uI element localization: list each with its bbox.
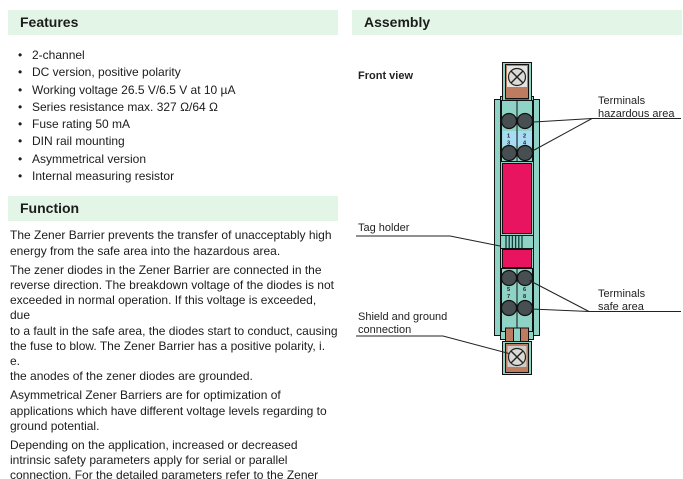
zener-barrier-device: 1 3 2 4 bbox=[495, 63, 540, 375]
shield-leader-line bbox=[356, 336, 509, 354]
device-rail-right bbox=[534, 100, 540, 336]
hazardous-terminal-screw bbox=[502, 114, 517, 129]
feature-item: DIN rail mounting bbox=[8, 133, 338, 150]
function-paragraph: The Zener Barrier prevents the transfer … bbox=[10, 228, 338, 258]
terminals-hazardous-label: Terminals bbox=[598, 95, 646, 107]
front-view-label: Front view bbox=[358, 70, 413, 82]
terminal-number: 8 bbox=[523, 294, 526, 300]
hazardous-terminal-screw bbox=[502, 146, 517, 161]
hazardous-leader-line bbox=[534, 119, 592, 123]
hazardous-terminal-screw bbox=[518, 146, 533, 161]
feature-item: Internal measuring resistor bbox=[8, 168, 338, 185]
tag-holder-leader-line bbox=[356, 236, 500, 246]
terminal-number: 2 bbox=[523, 134, 526, 140]
hazardous-terminal-screw bbox=[518, 114, 533, 129]
terminal-number: 6 bbox=[523, 287, 526, 293]
feature-item: Working voltage 26.5 V/6.5 V at 10 µA bbox=[8, 82, 338, 99]
label-field-lower bbox=[503, 250, 532, 268]
function-paragraph: The zener diodes in the Zener Barrier ar… bbox=[10, 263, 338, 385]
function-paragraph: Asymmetrical Zener Barriers are for opti… bbox=[10, 388, 338, 434]
function-paragraph: Depending on the application, increased … bbox=[10, 438, 338, 479]
feature-item: Series resistance max. 327 Ω/64 Ω bbox=[8, 99, 338, 116]
shield-ground-label: connection bbox=[358, 324, 411, 336]
feature-item: Fuse rating 50 mA bbox=[8, 116, 338, 133]
safe-terminal-screw bbox=[502, 271, 517, 286]
terminal-number: 5 bbox=[507, 287, 510, 293]
feature-item: Asymmetrical version bbox=[8, 151, 338, 168]
terminals-safe-label: Terminals bbox=[598, 288, 646, 300]
function-text: The Zener Barrier prevents the transfer … bbox=[8, 228, 338, 479]
safe-leader-line bbox=[532, 309, 590, 312]
terminals-safe-label: safe area bbox=[598, 301, 645, 313]
safe-terminal-screw bbox=[518, 271, 533, 286]
features-list: 2-channel DC version, positive polarity … bbox=[8, 47, 338, 185]
assembly-diagram: Front view bbox=[352, 40, 683, 440]
datasheet-page: Features 2-channel DC version, positive … bbox=[0, 0, 683, 479]
safe-terminal-screw bbox=[502, 301, 517, 316]
function-header: Function bbox=[8, 196, 338, 221]
terminals-hazardous-label: hazardous area bbox=[598, 108, 675, 120]
label-field-upper bbox=[503, 164, 532, 234]
hazardous-leader-line bbox=[532, 119, 593, 152]
device-rail-left bbox=[495, 100, 501, 336]
feature-item: 2-channel bbox=[8, 47, 338, 64]
features-header: Features bbox=[8, 10, 338, 35]
bottom-clamp-slot bbox=[514, 328, 521, 343]
feature-item: DC version, positive polarity bbox=[8, 64, 338, 81]
left-column: Features 2-channel DC version, positive … bbox=[8, 10, 338, 479]
terminal-number: 7 bbox=[507, 294, 510, 300]
safe-terminal-screw bbox=[518, 301, 533, 316]
right-column: Assembly Front view bbox=[352, 10, 682, 35]
assembly-header: Assembly bbox=[352, 10, 682, 35]
shield-ground-label: Shield and ground bbox=[358, 311, 447, 323]
tag-holder-label: Tag holder bbox=[358, 222, 410, 234]
terminal-number: 1 bbox=[507, 134, 510, 140]
